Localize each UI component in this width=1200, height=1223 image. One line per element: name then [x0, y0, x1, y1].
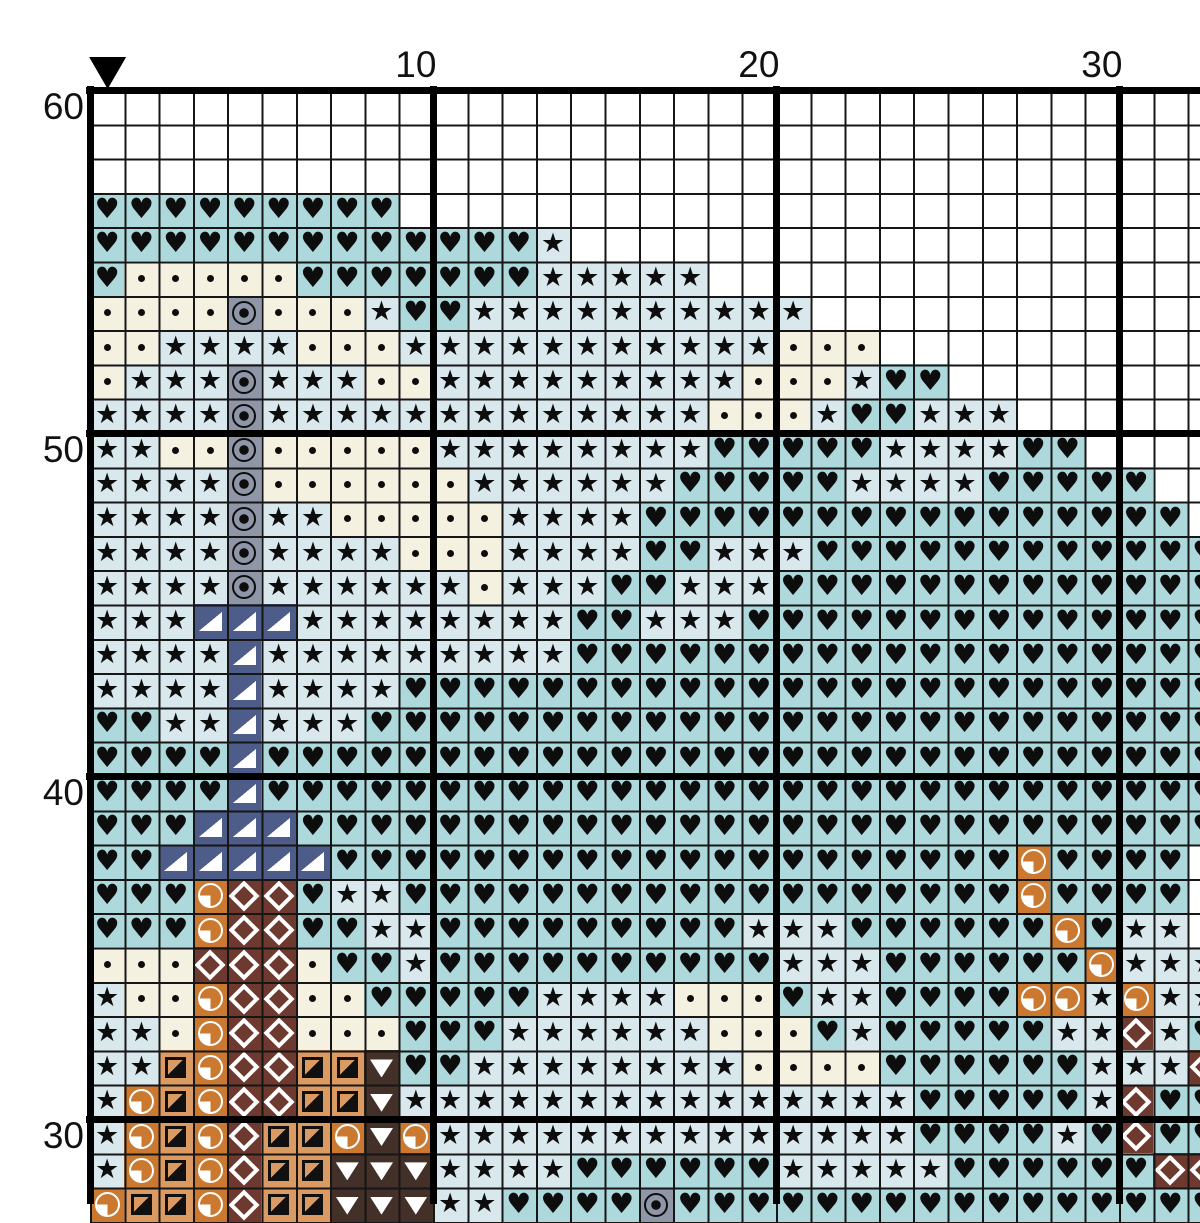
grid-cell: ♥ [364, 776, 398, 810]
star-icon: ★ [541, 504, 565, 531]
grid-cell: ♥ [707, 502, 741, 536]
grid-cell: ♥ [879, 845, 913, 879]
heart-icon: ♥ [1055, 881, 1080, 909]
grid-cell [1188, 1153, 1200, 1187]
heart-icon: ♥ [1158, 504, 1183, 532]
grid-cell: ♥ [913, 810, 947, 844]
star-icon: ★ [1158, 984, 1182, 1011]
grid-cell: ♥ [982, 467, 1016, 501]
dot-icon [275, 275, 282, 282]
grid-cell: ♥ [1016, 1119, 1050, 1153]
grid-cell: ★ [227, 330, 261, 364]
grid-cell: ★ [707, 1119, 741, 1153]
heart-icon: ♥ [1021, 1052, 1046, 1080]
tri-corner-icon [301, 852, 324, 871]
grid-cell: ♥ [913, 879, 947, 913]
star-icon: ★ [198, 641, 222, 668]
grid-cell: ♥ [879, 947, 913, 981]
star-icon: ★ [541, 1156, 565, 1183]
grid-cell: ★ [502, 1050, 536, 1084]
grid-cell [261, 261, 295, 295]
grid-cell [502, 193, 536, 227]
grid-cell: ♥ [124, 776, 158, 810]
star-icon: ★ [781, 1122, 805, 1149]
heart-icon: ♥ [1055, 435, 1080, 463]
grid-cell: ♥ [433, 879, 467, 913]
grid-cell: ♥ [124, 707, 158, 741]
heart-icon: ♥ [1158, 881, 1183, 909]
grid-cell: ♥ [1050, 845, 1084, 879]
grid-cell: ★ [124, 502, 158, 536]
heart-icon: ♥ [335, 950, 360, 978]
grid-cell: ♥ [879, 879, 913, 913]
grid-cell: ♥ [982, 639, 1016, 673]
grid-cell: ♥ [1188, 1016, 1200, 1050]
grid-cell [296, 1153, 330, 1187]
grid-cell: ♥ [1016, 536, 1050, 570]
star-icon: ★ [815, 950, 839, 977]
grid-cell: ★ [604, 1085, 638, 1119]
star-icon: ★ [129, 1019, 153, 1046]
star-icon: ★ [267, 333, 291, 360]
heart-icon: ♥ [883, 778, 908, 806]
grid-cell [330, 296, 364, 330]
grid-cell [330, 330, 364, 364]
grid-cell: ♥ [845, 604, 879, 638]
heart-icon: ♥ [609, 709, 634, 737]
heart-icon: ♥ [266, 778, 291, 806]
heart-icon: ♥ [266, 744, 291, 772]
star-icon: ★ [747, 1122, 771, 1149]
grid-cell: ♥ [947, 947, 981, 981]
heart-icon: ♥ [1192, 778, 1200, 806]
grid-cell: ♥ [810, 639, 844, 673]
star-icon: ★ [472, 401, 496, 428]
star-icon: ★ [884, 1087, 908, 1114]
grid-cell [124, 1119, 158, 1153]
star-icon: ★ [781, 539, 805, 566]
grid-cell [1188, 330, 1200, 364]
grid-cell: ♥ [947, 879, 981, 913]
dot-icon [447, 550, 454, 557]
star-icon: ★ [609, 367, 633, 394]
grid-cell [1085, 90, 1119, 124]
grid-cell [399, 1188, 433, 1222]
grid-cell: ★ [433, 399, 467, 433]
grid-cell: ★ [810, 399, 844, 433]
grid-cell [1119, 1085, 1153, 1119]
grid-cell: ★ [330, 570, 364, 604]
grid-cell: ♥ [913, 742, 947, 776]
grid-cell: ★ [845, 1153, 879, 1187]
star-icon: ★ [850, 1087, 874, 1114]
grid-cell: ★ [536, 1050, 570, 1084]
grid-cell: ★ [330, 399, 364, 433]
heart-icon: ♥ [506, 812, 531, 840]
grid-cell: ♥ [1050, 1188, 1084, 1222]
grid-cell [879, 90, 913, 124]
grid-cell [433, 124, 467, 158]
grid-cell [536, 90, 570, 124]
star-icon: ★ [712, 333, 736, 360]
grid-cell [947, 90, 981, 124]
heart-icon: ♥ [197, 229, 222, 257]
heart-icon: ♥ [95, 264, 120, 292]
heart-icon: ♥ [540, 915, 565, 943]
grid-cell: ★ [845, 467, 879, 501]
heart-icon: ♥ [643, 847, 668, 875]
grid-cell [1188, 296, 1200, 330]
dot-icon [275, 481, 282, 488]
grid-cell: ♥ [913, 982, 947, 1016]
grid-cell: ♥ [707, 639, 741, 673]
heart-icon: ♥ [163, 744, 188, 772]
grid-cell: ♥ [570, 947, 604, 981]
grid-cell: ★ [296, 364, 330, 398]
grid-cell [639, 193, 673, 227]
grid-cell: ★ [399, 570, 433, 604]
grid-cell: ♥ [742, 879, 776, 913]
heart-icon: ♥ [746, 607, 771, 635]
grid-cell [776, 193, 810, 227]
grid-cell: ♥ [673, 639, 707, 673]
grid-cell: ♥ [433, 707, 467, 741]
diamond-outline-icon [263, 949, 294, 980]
grid-cell: ♥ [947, 604, 981, 638]
grid-cell: ★ [399, 399, 433, 433]
grid-cell: ♥ [1016, 810, 1050, 844]
grid-cell: ♥ [467, 913, 501, 947]
heart-icon: ♥ [952, 1018, 977, 1046]
heart-icon: ♥ [1021, 950, 1046, 978]
grid-cell: ♥ [845, 536, 879, 570]
grid-cell: ★ [433, 1119, 467, 1153]
heart-icon: ♥ [815, 778, 840, 806]
heart-icon: ♥ [129, 195, 154, 223]
grid-cell: ♥ [639, 845, 673, 879]
grid-cell: ♥ [913, 639, 947, 673]
star-icon: ★ [609, 470, 633, 497]
grid-cell: ♥ [364, 227, 398, 261]
star-icon: ★ [541, 607, 565, 634]
grid-cell: ♥ [124, 845, 158, 879]
heart-icon: ♥ [643, 1155, 668, 1183]
heart-icon: ♥ [540, 778, 565, 806]
heart-icon: ♥ [1055, 950, 1080, 978]
tri-corner-icon [267, 852, 290, 871]
grid-cell [261, 1085, 295, 1119]
grid-cell: ♥ [1188, 673, 1200, 707]
grid-cell: ♥ [982, 776, 1016, 810]
heart-icon: ♥ [952, 504, 977, 532]
grid-cell [227, 1153, 261, 1187]
grid-cell: ★ [639, 330, 673, 364]
grid-cell [261, 947, 295, 981]
grid-cell: ♥ [1016, 1153, 1050, 1187]
tri-corner-icon [233, 612, 256, 631]
star-icon: ★ [198, 539, 222, 566]
grid-cell: ★ [296, 639, 330, 673]
grid-cell: ★ [296, 604, 330, 638]
grid-cell: ♥ [467, 742, 501, 776]
grid-cell [227, 1085, 261, 1119]
heart-icon: ♥ [1089, 812, 1114, 840]
grid-cell: ♥ [947, 810, 981, 844]
heart-icon: ♥ [712, 641, 737, 669]
grid-cell [467, 159, 501, 193]
grid-cell: ♥ [1085, 673, 1119, 707]
star-icon: ★ [95, 504, 119, 531]
grid-cell: ♥ [673, 879, 707, 913]
grid-cell: ♥ [947, 639, 981, 673]
grid-cell: ★ [947, 399, 981, 433]
heart-icon: ♥ [540, 881, 565, 909]
heart-icon: ♥ [746, 744, 771, 772]
heart-icon: ♥ [815, 641, 840, 669]
grid-cell [845, 330, 879, 364]
pie-icon [95, 1192, 120, 1217]
grid-cell: ★ [1188, 982, 1200, 1016]
grid-cell: ♥ [604, 947, 638, 981]
star-icon: ★ [712, 607, 736, 634]
heart-icon: ♥ [678, 847, 703, 875]
heart-icon: ♥ [609, 607, 634, 635]
grid-cell: ★ [159, 330, 193, 364]
grid-cell: ★ [330, 536, 364, 570]
heart-icon: ♥ [918, 675, 943, 703]
grid-cell: ★ [467, 1050, 501, 1084]
grid-cell [1188, 90, 1200, 124]
grid-cell: ♥ [1016, 1050, 1050, 1084]
heart-icon: ♥ [643, 572, 668, 600]
grid-cell: ★ [604, 1119, 638, 1153]
grid-cell: ♥ [124, 913, 158, 947]
dot-icon [721, 412, 728, 419]
heart-icon: ♥ [1089, 744, 1114, 772]
triangle-down-icon [336, 1162, 359, 1180]
heart-icon: ♥ [300, 915, 325, 943]
tri-corner-icon [233, 681, 256, 700]
heart-icon: ♥ [472, 915, 497, 943]
grid-cell: ♥ [1050, 502, 1084, 536]
star-icon: ★ [404, 641, 428, 668]
grid-cell [1050, 296, 1084, 330]
heart-icon: ♥ [1089, 641, 1114, 669]
grid-cell: ♥ [90, 913, 124, 947]
grid-cell: ★ [742, 1119, 776, 1153]
grid-cell: ♥ [879, 1016, 913, 1050]
grid-cell [433, 502, 467, 536]
row-label-60: 60 [18, 88, 84, 126]
star-icon: ★ [335, 881, 359, 908]
grid-cell: ♥ [502, 879, 536, 913]
heart-icon: ♥ [1089, 504, 1114, 532]
grid-cell: ★ [536, 399, 570, 433]
heart-icon: ♥ [746, 641, 771, 669]
star-icon: ★ [95, 641, 119, 668]
grid-cell: ♥ [707, 433, 741, 467]
grid-cell: ★ [364, 536, 398, 570]
heart-icon: ♥ [678, 744, 703, 772]
grid-cell: ★ [536, 364, 570, 398]
grid-cell: ★ [502, 364, 536, 398]
star-icon: ★ [507, 573, 531, 600]
grid-cell: ♥ [673, 947, 707, 981]
heart-icon: ♥ [403, 812, 428, 840]
grid-cell [810, 90, 844, 124]
star-icon: ★ [541, 470, 565, 497]
heart-icon: ♥ [849, 778, 874, 806]
grid-cell: ♥ [982, 673, 1016, 707]
grid-cell [227, 947, 261, 981]
grid-cell: ♥ [776, 742, 810, 776]
grid-cell: ♥ [1050, 810, 1084, 844]
heart-icon: ♥ [883, 401, 908, 429]
star-icon: ★ [678, 1019, 702, 1046]
star-icon: ★ [781, 916, 805, 943]
heart-icon: ♥ [1158, 1190, 1183, 1218]
star-icon: ★ [644, 607, 668, 634]
heart-icon: ♥ [986, 881, 1011, 909]
heart-icon: ♥ [95, 915, 120, 943]
heart-icon: ♥ [643, 641, 668, 669]
heart-icon: ♥ [678, 709, 703, 737]
heart-icon: ♥ [1089, 847, 1114, 875]
grid-cell: ★ [193, 570, 227, 604]
heart-icon: ♥ [883, 1190, 908, 1218]
grid-cell: ♥ [433, 1050, 467, 1084]
grid-cell: ♥ [776, 810, 810, 844]
grid-cell [1016, 845, 1050, 879]
grid-cell: ★ [639, 364, 673, 398]
tri-corner-icon [233, 784, 256, 803]
heart-icon: ♥ [369, 709, 394, 737]
heart-icon: ♥ [506, 709, 531, 737]
star-icon: ★ [335, 367, 359, 394]
grid-cell: ★ [742, 570, 776, 604]
star-icon: ★ [164, 607, 188, 634]
dot-icon [447, 515, 454, 522]
pie-icon [1089, 952, 1114, 977]
grid-cell: ★ [159, 467, 193, 501]
grid-cell: ♥ [982, 879, 1016, 913]
grid-cell [1153, 433, 1187, 467]
star-icon: ★ [472, 1190, 496, 1217]
heart-icon: ♥ [952, 572, 977, 600]
grid-cell: ♥ [604, 913, 638, 947]
heart-icon: ♥ [986, 812, 1011, 840]
heart-icon: ♥ [918, 1052, 943, 1080]
tri-corner-icon [164, 852, 187, 871]
square-diagonal-icon [302, 1091, 323, 1112]
grid-cell: ★ [296, 673, 330, 707]
grid-cell: ★ [467, 639, 501, 673]
grid-cell: ★ [1153, 947, 1187, 981]
grid-cell: ★ [947, 433, 981, 467]
grid-cell: ♥ [742, 433, 776, 467]
grid-cell: ♥ [1085, 536, 1119, 570]
star-icon: ★ [815, 916, 839, 943]
grid-cell: ♥ [330, 742, 364, 776]
heart-icon: ♥ [575, 812, 600, 840]
grid-cell [639, 159, 673, 193]
heart-icon: ♥ [266, 229, 291, 257]
heart-icon: ♥ [609, 1190, 634, 1218]
heart-icon: ♥ [781, 607, 806, 635]
star-icon: ★ [472, 436, 496, 463]
grid-cell: ♥ [193, 193, 227, 227]
diamond-outline-icon [263, 915, 294, 946]
heart-icon: ♥ [369, 264, 394, 292]
grid-cell: ♥ [536, 947, 570, 981]
star-icon: ★ [815, 1087, 839, 1114]
grid-cell [1153, 261, 1187, 295]
heart-icon: ♥ [95, 847, 120, 875]
grid-cell: ♥ [810, 536, 844, 570]
grid-cell: ♥ [1119, 879, 1153, 913]
grid-cell: ♥ [776, 707, 810, 741]
star-icon: ★ [1090, 984, 1114, 1011]
heart-icon: ♥ [369, 229, 394, 257]
heart-icon: ♥ [643, 709, 668, 737]
grid-cell: ♥ [742, 604, 776, 638]
heart-icon: ♥ [163, 915, 188, 943]
star-icon: ★ [1055, 1122, 1079, 1149]
grid-cell: ♥ [707, 673, 741, 707]
grid-cell: ★ [673, 1119, 707, 1153]
grid-cell: ★ [296, 707, 330, 741]
diamond-outline-icon [1189, 1052, 1200, 1083]
star-icon: ★ [369, 298, 393, 325]
grid-cell: ★ [124, 673, 158, 707]
grid-cell [982, 227, 1016, 261]
grid-cell [227, 159, 261, 193]
grid-cell: ♥ [90, 845, 124, 879]
heart-icon: ♥ [540, 950, 565, 978]
grid-cell: ♥ [810, 707, 844, 741]
star-icon: ★ [781, 1156, 805, 1183]
tri-corner-icon [267, 818, 290, 837]
grid-cell: ★ [467, 1153, 501, 1187]
star-icon: ★ [781, 298, 805, 325]
grid-cell: ♥ [90, 879, 124, 913]
grid-cell [810, 159, 844, 193]
grid-cell: ♥ [913, 604, 947, 638]
grid-cell: ♥ [1153, 673, 1187, 707]
heart-icon: ♥ [918, 950, 943, 978]
grid-cell: ★ [776, 947, 810, 981]
grid-cell [399, 364, 433, 398]
grid-cell: ♥ [1016, 707, 1050, 741]
grid-cell: ★ [536, 1119, 570, 1153]
grid-cell: ♥ [913, 364, 947, 398]
heart-icon: ♥ [781, 847, 806, 875]
heart-icon: ♥ [918, 847, 943, 875]
star-icon: ★ [335, 607, 359, 634]
grid-cell [90, 1188, 124, 1222]
heart-icon: ♥ [163, 778, 188, 806]
grid-cell: ♥ [1119, 639, 1153, 673]
pie-icon [198, 1021, 223, 1046]
grid-cell: ♥ [913, 502, 947, 536]
heart-icon: ♥ [781, 641, 806, 669]
dot-icon [309, 344, 316, 351]
grid-cell: ♥ [776, 433, 810, 467]
grid-cell: ♥ [1050, 467, 1084, 501]
grid-cell: ♥ [1119, 1153, 1153, 1187]
grid-cell: ♥ [1119, 776, 1153, 810]
grid-cell [1188, 227, 1200, 261]
